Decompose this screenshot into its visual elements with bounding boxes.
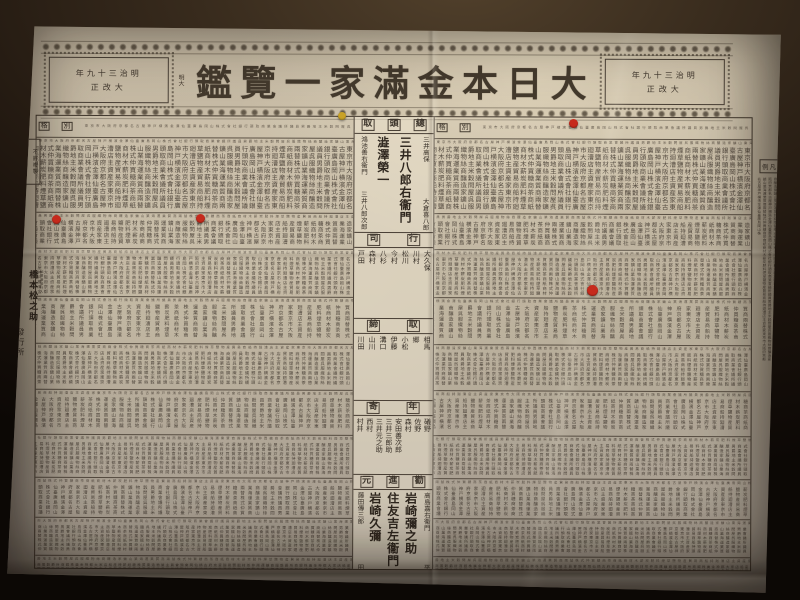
- center-column: 總頭取三井高保大倉喜八郎三井八郎右衞門澁澤榮一鴻池善右衞門三井八郎次郎行司大久保…: [352, 117, 435, 569]
- wealthy-name: 高島嘉右衞門: [422, 492, 429, 531]
- tier-names-texture: 東京市大阪府京都名古屋神戸横濱金澤仙臺廣島岡山株式會社銀行頭取商業會議所議員男爵…: [434, 145, 751, 214]
- section-bar: 勸進元: [353, 474, 432, 490]
- publisher-colophon: 編纂兼發行人 橋本松之助 發行所 法令館本店 仝支店: [13, 270, 44, 538]
- wealthy-name: 田中平八: [356, 564, 363, 569]
- side-names: 鴻池善右衞門三井八郎次郎: [359, 136, 366, 230]
- official-name: 村井: [356, 418, 364, 472]
- rank-label: 別: [460, 123, 471, 133]
- tier-names-texture: 式會社銀行頭取商業會議所議員男爵地主米穀問屋呉服織物絲商釀造家鑛山業海運業質商兩…: [433, 442, 750, 479]
- ranking-tier: 爵地主米穀問屋呉服織物絲商釀造家鑛山業海運業質商兩替株式仲買糖商茶商紙商材木薪炭…: [35, 555, 352, 569]
- official-name: 安田善次郎: [394, 418, 402, 472]
- main-title: 大日本金滿家一覽鑑: [186, 54, 597, 107]
- section-bar-glyph: 總: [414, 119, 427, 130]
- wealthy-name: 大倉喜八郎: [421, 198, 428, 231]
- section-bar-glyph: 年: [406, 402, 419, 413]
- ranking-tier: 兩替株式仲買糖商茶商紙商材木薪炭肥料煙草鹽物産貿易商船持廻漕店主資産家東京市大阪…: [433, 478, 750, 519]
- ranking-tier: 易商船持廻漕店主資産家東京市大阪府京都名古屋神戸横濱金澤仙臺廣島岡山株式會社銀行…: [36, 389, 353, 435]
- ranking-tier: 横濱金澤仙臺廣島岡山株式會社銀行頭取商業會議所議員男爵地主米穀問屋呉服織物絲商釀…: [36, 296, 353, 344]
- official-name: 三井三郎助: [384, 418, 392, 472]
- ranking-tier: 横濱金澤仙臺廣島岡山株式會社銀行頭取商業會議所議員男爵地主米穀問屋呉服織物絲商釀…: [434, 297, 751, 345]
- title-glyph: 滿: [373, 55, 409, 107]
- title-glyph: 覽: [240, 54, 276, 106]
- official-name: 三井元之助: [375, 418, 383, 472]
- ranking-tier: 市大阪府京都名古屋神戸横濱金澤仙臺廣島岡山株式會社銀行頭取商業會議所議員男爵地主…: [35, 517, 352, 556]
- official-name: 森村: [404, 418, 412, 472]
- dense-text: 東京市大阪府京都名古屋神戸横濱金澤仙臺廣島岡山株式會社銀行頭取商業會議所議員男爵…: [85, 124, 352, 130]
- publisher-role: 編纂兼發行人: [38, 270, 44, 538]
- tier-names-texture: 造家鑛山業海運業質商兩替株式仲買糖商茶商紙商材木薪炭肥料煙草鹽物産貿易商船持廻漕…: [36, 219, 353, 249]
- official-name: 戸田: [357, 250, 365, 316]
- official-name: 森村: [368, 250, 376, 316]
- tier-names-texture: 質商兩替株式仲買糖商茶商紙商材木薪炭肥料煙草鹽物産貿易商船持廻漕店主資産家東京市…: [434, 304, 751, 345]
- section-bar: 年寄: [354, 400, 433, 416]
- official-name: 溝口: [379, 336, 387, 398]
- legend-header: 例凡: [759, 159, 779, 173]
- tier-names-texture: 式會社銀行頭取商業會議所議員男爵地主米穀問屋呉服織物絲商釀造家鑛山業海運業質商兩…: [35, 441, 352, 478]
- tier-names-texture: 質商兩替株式仲買糖商茶商紙商材木薪炭肥料煙草鹽物産貿易商船持廻漕店主資産家東京市…: [36, 303, 353, 344]
- red-sticker: [587, 285, 598, 296]
- wealthy-name: 鴻池善右衞門: [360, 136, 367, 175]
- title-glyph: 一: [285, 55, 321, 107]
- tier-names-texture: 造家鑛山業海運業質商兩替株式仲買糖商茶商紙商材木薪炭肥料煙草鹽物産貿易商船持廻漕…: [434, 220, 751, 250]
- publisher-label: 發行所: [14, 270, 26, 538]
- section-bar-glyph: 寄: [367, 402, 380, 413]
- wealthy-name-large: 澁澤榮一: [377, 136, 389, 230]
- section-bar-glyph: 行: [407, 234, 420, 245]
- official-name: 松川: [401, 250, 409, 316]
- official-name: 佐野: [413, 418, 421, 472]
- tier-names-texture: 産貿易商船持廻漕店主資産家東京市大阪府京都名古屋神戸横濱金澤仙臺廣島岡山株式會社…: [35, 562, 352, 569]
- notable-names-block: 三井高保大倉喜八郎三井八郎右衞門澁澤榮一鴻池善右衞門三井八郎次郎: [354, 134, 433, 232]
- section-bar-glyph: 司: [367, 234, 380, 245]
- notable-names-block: 高島嘉右衞門平沼專藏岩崎彌之助住友吉左衞門岩崎久彌藤田傳三郎田中平八: [353, 490, 432, 569]
- ranking-tier: 東京市大阪府京都名古屋神戸横濱金澤仙臺廣島岡山株式會社銀行頭取商業會議所議員男爵…: [36, 137, 353, 213]
- official-name: 八杉: [379, 250, 387, 316]
- officials-row: 大久保川村松川今村八杉森村戸田: [354, 248, 433, 318]
- wealthy-name-large: 岩崎彌之助: [404, 492, 416, 569]
- tier-names-texture: 産貿易商船持廻漕店主資産家東京市大阪府京都名古屋神戸横濱金澤仙臺廣島岡山株式會社…: [433, 563, 750, 570]
- tier-names-texture: 名古屋神戸横濱金澤仙臺廣島岡山株式會社銀行頭取商業會議所議員男爵地主米穀問屋呉服…: [36, 255, 353, 297]
- banzuke-poster: 年九十三治明 正改大 明大 大日本金滿家一覽鑑 年九十三治明 正改大 格別東京市…: [0, 0, 800, 600]
- ranking-tier: 市大阪府京都名古屋神戸横濱金澤仙臺廣島岡山株式會社銀行頭取商業會議所議員男爵地主…: [433, 518, 750, 557]
- side-names: 三井高保大倉喜八郎: [421, 136, 428, 230]
- tier-names-texture: 業會議所議員男爵地主米穀問屋呉服織物絲商釀造家鑛山業海運業質商兩替株式仲買糖商茶…: [35, 524, 352, 556]
- official-name: 礒野: [423, 418, 431, 472]
- official-name: 山川: [368, 336, 376, 398]
- wealthy-name: 藤田傳三郎: [356, 492, 363, 525]
- ranking-tier: 商材木薪炭肥料煙草鹽物産貿易商船持廻漕店主資産家東京市大阪府京都名古屋神戸横濱金…: [36, 248, 353, 297]
- ranking-tier: 絲商釀造家鑛山業海運業質商兩替株式仲買糖商茶商紙商材木薪炭肥料煙草鹽物産貿易商船…: [434, 344, 751, 391]
- ranking-tier: 易商船持廻漕店主資産家東京市大阪府京都名古屋神戸横濱金澤仙臺廣島岡山株式會社銀行…: [434, 390, 751, 436]
- official-name: 川村: [412, 250, 420, 316]
- section-bar-glyph: 取: [361, 119, 374, 130]
- rank-label: 格: [39, 121, 50, 131]
- ranking-tier: 員男爵地主米穀問屋呉服織物絲商釀造家鑛山業海運業質商兩替株式仲買糖商茶商紙商材木…: [434, 213, 751, 250]
- era-year: 年九十三治明: [632, 69, 698, 80]
- officials-row: 礒野佐野森村安田善次郎三井三郎助三井元之助西村村井: [353, 416, 432, 474]
- ranking-grid-right: 格別東京市大阪府京都名古屋神戸横濱金澤仙臺廣島岡山株式會社銀行頭取商業會議所議員…: [433, 117, 752, 570]
- title-glyph: 金: [418, 55, 454, 107]
- title-band: 年九十三治明 正改大 明大 大日本金滿家一覽鑑 年九十三治明 正改大: [41, 41, 733, 115]
- section-bar: 取締: [354, 318, 433, 334]
- ranking-tier: 員男爵地主米穀問屋呉服織物絲商釀造家鑛山業海運業質商兩替株式仲買糖商茶商紙商材木…: [36, 212, 353, 249]
- publisher-name: 橋本松之助: [25, 270, 39, 538]
- ranking-table: 格別東京市大阪府京都名古屋神戸横濱金澤仙臺廣島岡山株式會社銀行頭取商業會議所議員…: [34, 115, 753, 572]
- ranking-tier: 爵地主米穀問屋呉服織物絲商釀造家鑛山業海運業質商兩替株式仲買糖商茶商紙商材木薪炭…: [433, 556, 750, 570]
- section-bar-glyph: 進: [386, 476, 399, 487]
- wealthy-name: 平沼專藏: [422, 564, 429, 569]
- tier-names-texture: 東京市大阪府京都名古屋神戸横濱金澤仙臺廣島岡山株式會社銀行頭取商業會議所議員男爵…: [36, 144, 353, 213]
- side-names: 藤田傳三郎田中平八: [356, 492, 363, 569]
- ranking-tier: 社銀行頭取商業會議所議員男爵地主米穀問屋呉服織物絲商釀造家鑛山業海運業質商兩替株…: [35, 434, 352, 478]
- ranking-tier: 社銀行頭取商業會議所議員男爵地主米穀問屋呉服織物絲商釀造家鑛山業海運業質商兩替株…: [433, 435, 750, 479]
- rank-label: 格: [437, 123, 448, 133]
- title-glyph: 日: [506, 55, 542, 107]
- ranking-tier: 絲商釀造家鑛山業海運業質商兩替株式仲買糖商茶商紙商材木薪炭肥料煙草鹽物産貿易商船…: [36, 343, 353, 390]
- red-sticker: [569, 119, 578, 128]
- official-name: 大久保: [423, 250, 431, 316]
- title-glyph: 鑑: [196, 54, 232, 106]
- tier-names-texture: 糖商茶商紙商材木薪炭肥料煙草鹽物産貿易商船持廻漕店主資産家東京市大阪府京都名古屋…: [434, 397, 751, 436]
- rank-header-row: 格別東京市大阪府京都名古屋神戸横濱金澤仙臺廣島岡山株式會社銀行頭取商業會議所議員…: [37, 116, 354, 138]
- official-name: 小松: [400, 336, 408, 398]
- document: 年九十三治明 正改大 明大 大日本金滿家一覽鑑 年九十三治明 正改大 格別東京市…: [11, 27, 773, 582]
- wealthy-name-large: 住友吉左衞門: [387, 492, 399, 569]
- red-sticker: [52, 215, 61, 224]
- rank-header-row: 格別東京市大阪府京都名古屋神戸横濱金澤仙臺廣島岡山株式會社銀行頭取商業會議所議員…: [435, 117, 752, 139]
- tier-names-texture: 糖商茶商紙商材木薪炭肥料煙草鹽物産貿易商船持廻漕店主資産家東京市大阪府京都名古屋…: [36, 396, 353, 435]
- official-name: 郷: [411, 336, 419, 398]
- legend-text: 東京市大阪府京都名古屋神戸横濱金澤仙臺廣島岡山株式會社銀行頭取商業會議所議員男爵…: [756, 177, 784, 362]
- tier-names-texture: 薪炭肥料煙草鹽物産貿易商船持廻漕店主資産家東京市大阪府京都名古屋神戸横濱金澤仙臺…: [433, 485, 750, 519]
- section-bar: 總頭取: [355, 117, 434, 134]
- dense-text: 東京市大阪府京都名古屋神戸横濱金澤仙臺廣島岡山株式會社銀行頭取商業會議所議員男爵…: [483, 125, 750, 131]
- era-revision: 正改大: [647, 83, 683, 94]
- tier-names-texture: 業會議所議員男爵地主米穀問屋呉服織物絲商釀造家鑛山業海運業質商兩替株式仲買糖商茶…: [433, 525, 750, 557]
- official-name: 西村: [365, 418, 373, 472]
- era-revision: 正改大: [91, 81, 127, 92]
- official-name: 川田: [357, 336, 365, 398]
- ranking-tier: 東京市大阪府京都名古屋神戸横濱金澤仙臺廣島岡山株式會社銀行頭取商業會議所議員男爵…: [434, 138, 751, 214]
- section-bar-glyph: 締: [367, 320, 380, 331]
- section-bar-glyph: 元: [360, 476, 373, 487]
- rank-label: 別: [62, 122, 73, 132]
- era-year: 年九十三治明: [76, 67, 142, 78]
- tier-names-texture: 薪炭肥料煙草鹽物産貿易商船持廻漕店主資産家東京市大阪府京都名古屋神戸横濱金澤仙臺…: [35, 484, 352, 518]
- tier-names-texture: 澤仙臺廣島岡山株式會社銀行頭取商業會議所議員男爵地主米穀問屋呉服織物絲商釀造家鑛…: [36, 350, 353, 390]
- section-bar-glyph: 勸: [413, 476, 426, 487]
- wealthy-name-large: 三井八郎右衞門: [399, 136, 411, 230]
- yellow-sticker: [338, 112, 346, 120]
- legend-column: 例凡 東京市大阪府京都名古屋神戸横濱金澤仙臺廣島岡山株式會社銀行頭取商業會議所議…: [756, 159, 783, 379]
- side-names: 高島嘉右衞門平沼專藏: [422, 492, 429, 569]
- official-name: 伊藤: [390, 336, 398, 398]
- wealthy-name: 三井八郎次郎: [359, 191, 366, 230]
- ranking-tier: 兩替株式仲買糖商茶商紙商材木薪炭肥料煙草鹽物産貿易商船持廻漕店主資産家東京市大阪…: [35, 477, 352, 518]
- section-bar: 行司: [354, 232, 433, 248]
- section-bar-glyph: 取: [407, 320, 420, 331]
- title-glyph: 家: [329, 55, 365, 107]
- tier-names-texture: 澤仙臺廣島岡山株式會社銀行頭取商業會議所議員男爵地主米穀問屋呉服織物絲商釀造家鑛…: [434, 351, 751, 391]
- official-name: 今村: [390, 250, 398, 316]
- wall: 年九十三治明 正改大 明大 大日本金滿家一覽鑑 年九十三治明 正改大 格別東京市…: [0, 0, 800, 600]
- wealthy-name: 三井高保: [422, 136, 429, 162]
- officials-row: 相馬郷小松伊藤溝口山川川田: [354, 334, 433, 400]
- title-glyph: 本: [462, 55, 498, 107]
- official-name: 相馬: [422, 336, 430, 398]
- ranking-grid-left: 格別東京市大阪府京都名古屋神戸横濱金澤仙臺廣島岡山株式會社銀行頭取商業會議所議員…: [35, 116, 354, 569]
- wealthy-name-large: 岩崎久彌: [369, 492, 381, 569]
- mini-era-note: 明大: [177, 74, 184, 86]
- red-sticker: [196, 214, 205, 223]
- era-box-left: 年九十三治明 正改大: [49, 57, 169, 103]
- era-box-right: 年九十三治明 正改大: [605, 59, 725, 105]
- no-copy-seal: 不許複製: [16, 139, 40, 185]
- section-bar-glyph: 頭: [388, 119, 401, 130]
- title-glyph: 大: [551, 56, 587, 108]
